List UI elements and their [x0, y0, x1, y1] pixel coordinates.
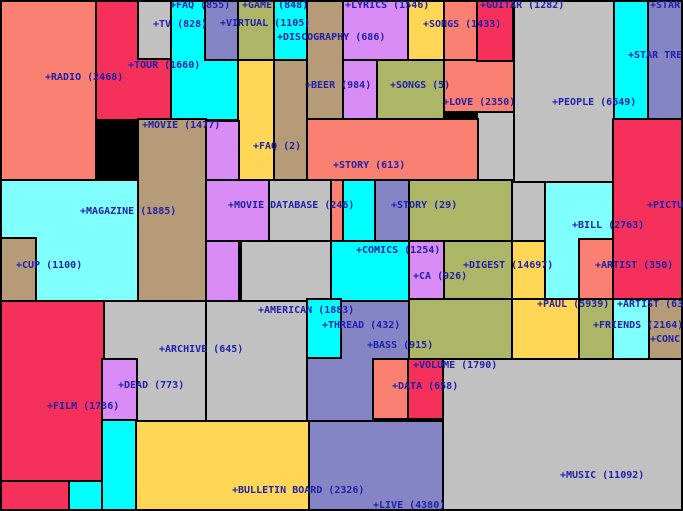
map-label-people-6649[interactable]: +PEOPLE (6649): [552, 98, 636, 108]
region-film[interactable]: [0, 300, 105, 482]
region-music[interactable]: [442, 358, 683, 511]
region-tv[interactable]: [137, 0, 172, 60]
region-american[interactable]: [205, 300, 308, 422]
region-am-up2[interactable]: [240, 240, 332, 302]
region-live[interactable]: [308, 420, 444, 511]
map-label-digest-14697[interactable]: +DIGEST (14697): [463, 261, 553, 271]
map-label-american-1883[interactable]: +AMERICAN (1883): [258, 306, 354, 316]
map-label-archive-645[interactable]: +ARCHIVE (645): [159, 345, 243, 355]
map-label-radio-2468[interactable]: +RADIO (2468): [45, 73, 123, 83]
map-label-story-613[interactable]: +STORY (613): [333, 161, 405, 171]
map-label-paul-5939[interactable]: +PAUL (5939): [537, 300, 609, 310]
map-label-music-11092[interactable]: +MUSIC (11092): [560, 471, 644, 481]
map-label-beer-984[interactable]: +BEER (984): [305, 81, 371, 91]
map-label-artist-350[interactable]: +ARTIST (350): [595, 261, 673, 271]
region-film-low[interactable]: [0, 480, 70, 511]
map-label-songs-1433[interactable]: +SONGS (1433): [423, 20, 501, 30]
map-label-love-2350[interactable]: +LOVE (2350): [443, 98, 515, 108]
region-people-col[interactable]: [476, 111, 515, 183]
map-label-friends-2164[interactable]: +FRIENDS (2164): [593, 321, 683, 331]
map-label-faq-855[interactable]: +FAQ (855): [170, 1, 230, 11]
map-label-story-29[interactable]: +STORY (29): [391, 201, 457, 211]
map-label-ca-926[interactable]: +CA (926): [413, 272, 467, 282]
region-people-mid[interactable]: [509, 181, 547, 243]
map-label-game-848[interactable]: +GAME (848): [242, 1, 308, 11]
map-label-bulletin-board-2326[interactable]: +BULLETIN BOARD (2326): [232, 486, 364, 496]
map-label-virtual-1105[interactable]: +VIRTUAL (1105): [220, 19, 310, 29]
map-label-tv-828[interactable]: +TV (828): [153, 20, 207, 30]
region-cyan-bl2[interactable]: [68, 480, 103, 511]
map-label-data-658[interactable]: +DATA (658): [392, 382, 458, 392]
region-beer-left[interactable]: [273, 59, 308, 181]
map-label-bass-915[interactable]: +BASS (915): [367, 341, 433, 351]
region-story613[interactable]: [306, 118, 479, 181]
map-label-faq-2[interactable]: +FAQ (2): [253, 142, 301, 152]
map-label-tour-1660[interactable]: +TOUR (1660): [128, 61, 200, 71]
region-cyan-bl1[interactable]: [101, 419, 137, 511]
map-label-discography-686[interactable]: +DISCOGRAPHY (686): [277, 33, 385, 43]
map-label-volume-1790[interactable]: +VOLUME (1790): [413, 361, 497, 371]
map-label-bill-2763[interactable]: +BILL (2763): [572, 221, 644, 231]
map-label-conc[interactable]: +CONC: [650, 335, 680, 345]
map-label-comics-1254[interactable]: +COMICS (1254): [356, 246, 440, 256]
region-bulletin[interactable]: [135, 420, 310, 511]
map-label-movie-database-246[interactable]: +MOVIE DATABASE (246): [228, 201, 354, 211]
region-radio[interactable]: [0, 0, 97, 181]
map-label-star-tre[interactable]: +STAR TRE: [628, 51, 682, 61]
region-beer-top[interactable]: [306, 0, 344, 120]
map-label-guitar-1282[interactable]: +GUITAR (1282): [480, 1, 564, 11]
map-label-cup-1100[interactable]: +CUP (1100): [16, 261, 82, 271]
region-faq2-strip[interactable]: [237, 59, 275, 181]
region-people[interactable]: [513, 0, 615, 183]
region-love-top[interactable]: [443, 0, 478, 61]
map-label-film-1736[interactable]: +FILM (1736): [47, 402, 119, 412]
map-label-dead-773[interactable]: +DEAD (773): [118, 381, 184, 391]
map-label-thread-432[interactable]: +THREAD (432): [322, 321, 400, 331]
map-label-movie-1477[interactable]: +MOVIE (1477): [142, 121, 220, 131]
map-label-artist-63[interactable]: +ARTIST (63: [617, 300, 683, 310]
map-label-pictu[interactable]: +PICTU: [647, 201, 683, 211]
map-label-songs-5[interactable]: +SONGS (5): [390, 81, 450, 91]
map-label-lyrics-1546[interactable]: +LYRICS (1546): [345, 1, 429, 11]
map-label-star[interactable]: +STAR: [650, 1, 680, 11]
map-label-magazine-1885[interactable]: +MAGAZINE (1885): [80, 207, 176, 217]
map-label-live-4380[interactable]: +LIVE (4380): [373, 501, 445, 511]
som-category-map: +FAQ (855)+GAME (848)+LYRICS (1546)+GUIT…: [0, 0, 683, 511]
